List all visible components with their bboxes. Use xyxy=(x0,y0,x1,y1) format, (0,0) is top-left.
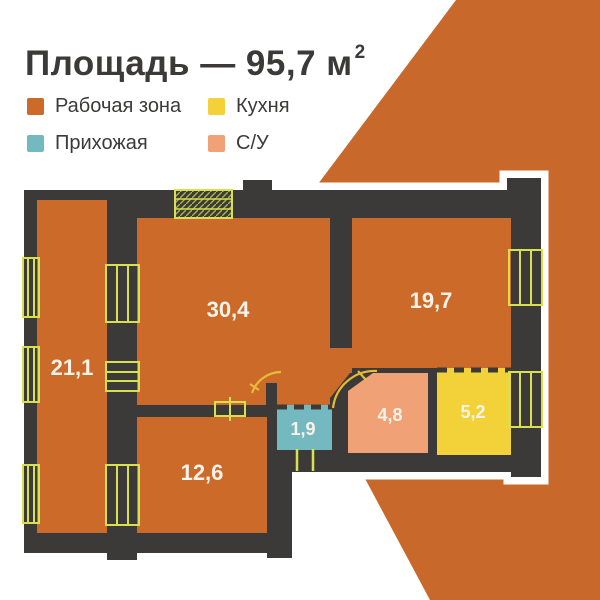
page-title-text: Площадь — 95,7 м xyxy=(25,44,353,83)
label-area-4-8: 4,8 xyxy=(377,405,402,425)
legend-swatch-hallway xyxy=(27,135,44,152)
page-title: Площадь — 95,7 м2 xyxy=(25,44,364,84)
wall-stub xyxy=(266,383,277,407)
legend-item-work-zone: Рабочая зона xyxy=(27,95,181,118)
legend-label-kitchen: Кухня xyxy=(236,95,290,118)
page-title-superscript: 2 xyxy=(355,42,366,63)
label-area-5-2: 5,2 xyxy=(460,402,485,422)
vent-shaft-icon xyxy=(175,190,232,218)
legend-label-work-zone: Рабочая зона xyxy=(55,95,181,118)
label-area-21-1: 21,1 xyxy=(51,355,94,380)
label-area-1-9: 1,9 xyxy=(290,419,315,439)
legend-label-bathroom: С/У xyxy=(236,132,269,155)
floorplan-svg: 21,1 30,4 19,7 12,6 1,9 4,8 5,2 xyxy=(0,0,600,600)
legend-label-hallway: Прихожая xyxy=(55,132,148,155)
label-area-12-6: 12,6 xyxy=(181,460,224,485)
legend-swatch-kitchen xyxy=(208,98,225,115)
label-area-30-4: 30,4 xyxy=(207,297,251,322)
label-area-19-7: 19,7 xyxy=(410,288,453,313)
legend-item-hallway: Прихожая xyxy=(27,132,148,155)
legend-swatch-work-zone xyxy=(27,98,44,115)
floorplan-page: 21,1 30,4 19,7 12,6 1,9 4,8 5,2 Площадь … xyxy=(0,0,600,600)
legend-swatch-bathroom xyxy=(208,135,225,152)
legend-item-kitchen: Кухня xyxy=(208,95,290,118)
legend-item-bathroom: С/У xyxy=(208,132,269,155)
passage-opening xyxy=(330,348,352,373)
